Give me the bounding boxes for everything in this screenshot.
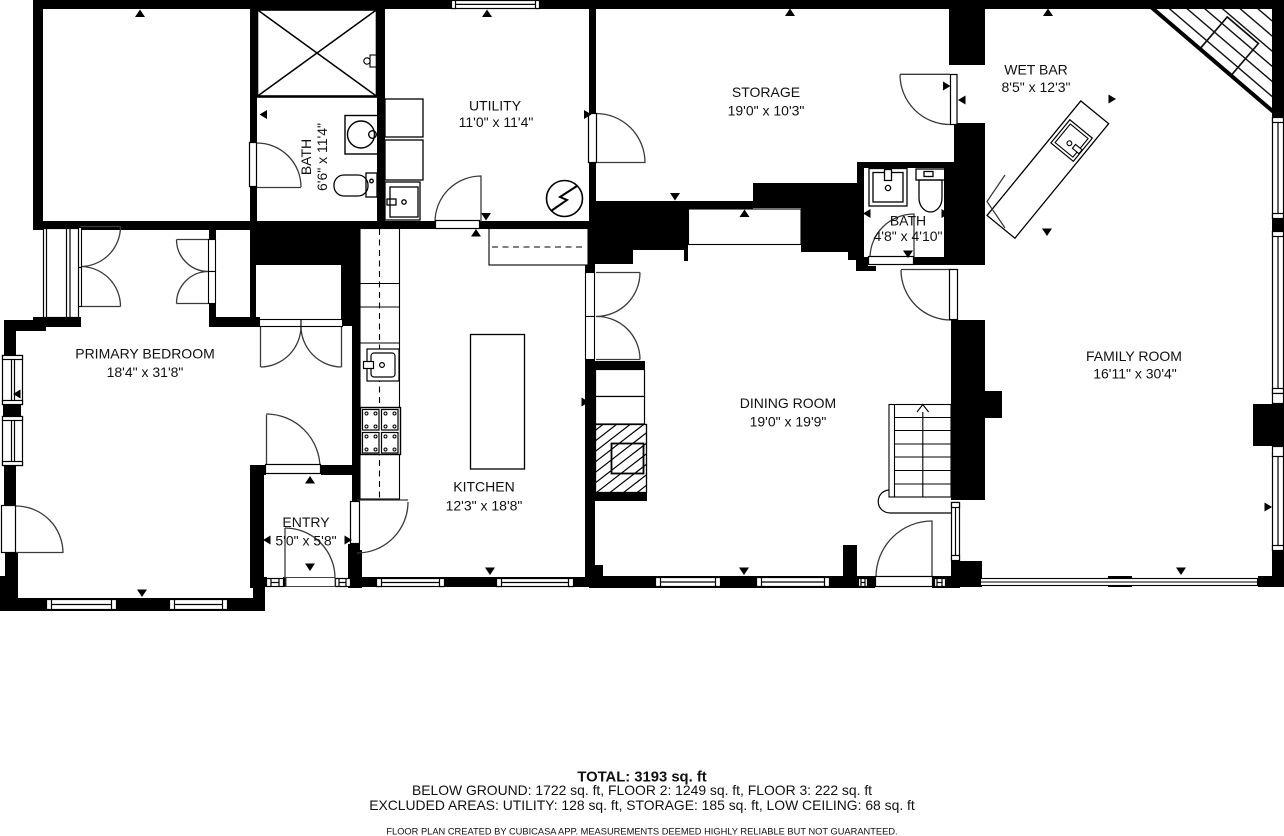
svg-text:12'3" x 18'8": 12'3" x 18'8" [446, 498, 523, 514]
svg-text:5'0" x 5'8": 5'0" x 5'8" [275, 533, 336, 549]
svg-text:16'11" x 30'4": 16'11" x 30'4" [1093, 366, 1177, 382]
svg-text:BATH: BATH [298, 139, 314, 175]
svg-text:19'0" x 10'3": 19'0" x 10'3" [728, 103, 805, 119]
svg-text:STORAGE: STORAGE [732, 84, 800, 100]
svg-text:DINING ROOM: DINING ROOM [740, 395, 836, 411]
svg-text:ENTRY: ENTRY [282, 514, 330, 530]
svg-text:BELOW GROUND: 1722 sq. ft, FLO: BELOW GROUND: 1722 sq. ft, FLOOR 2: 1249… [412, 782, 872, 798]
svg-text:11'0" x 11'4": 11'0" x 11'4" [459, 114, 534, 130]
svg-text:18'4" x 31'8": 18'4" x 31'8" [107, 364, 184, 380]
svg-text:WET BAR: WET BAR [1004, 62, 1068, 78]
svg-text:BATH: BATH [890, 213, 926, 229]
svg-text:FLOOR PLAN CREATED BY CUBICASA: FLOOR PLAN CREATED BY CUBICASA APP. MEAS… [386, 826, 897, 836]
svg-text:4'8" x 4'10": 4'8" x 4'10" [874, 228, 943, 244]
svg-text:FAMILY ROOM: FAMILY ROOM [1086, 348, 1182, 364]
svg-text:KITCHEN: KITCHEN [453, 479, 514, 495]
svg-text:UTILITY: UTILITY [469, 98, 522, 114]
svg-text:EXCLUDED AREAS: UTILITY: 128 s: EXCLUDED AREAS: UTILITY: 128 sq. ft, STO… [369, 797, 915, 813]
svg-text:6'6" x 11'4": 6'6" x 11'4" [314, 123, 330, 191]
svg-text:8'5" x 12'3": 8'5" x 12'3" [1002, 79, 1071, 95]
svg-text:PRIMARY BEDROOM: PRIMARY BEDROOM [75, 346, 215, 362]
svg-text:19'0" x 19'9": 19'0" x 19'9" [750, 414, 827, 430]
